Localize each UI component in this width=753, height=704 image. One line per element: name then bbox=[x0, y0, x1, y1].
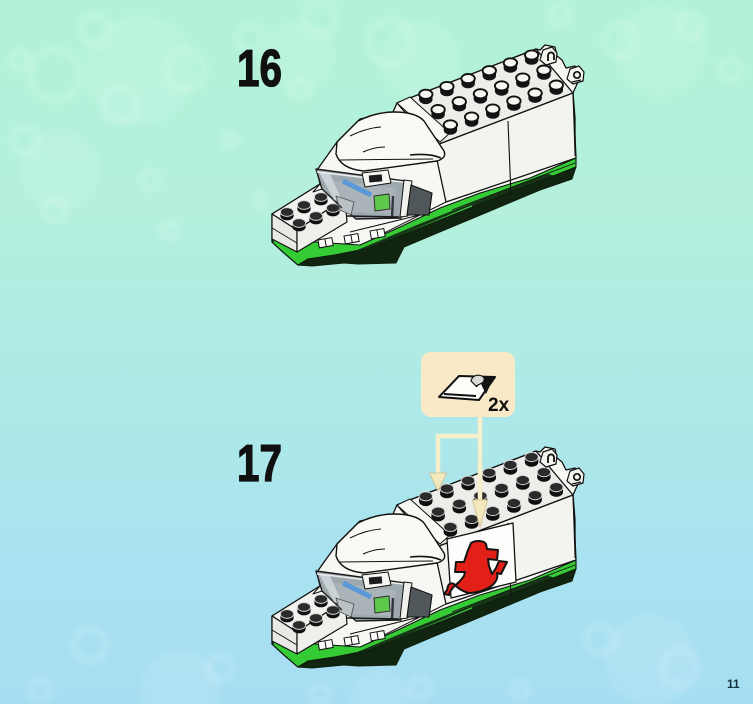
svg-text:11: 11 bbox=[727, 677, 740, 691]
svg-text:16: 16 bbox=[237, 40, 282, 98]
svg-text:2x: 2x bbox=[488, 395, 510, 416]
svg-text:17: 17 bbox=[237, 435, 282, 493]
